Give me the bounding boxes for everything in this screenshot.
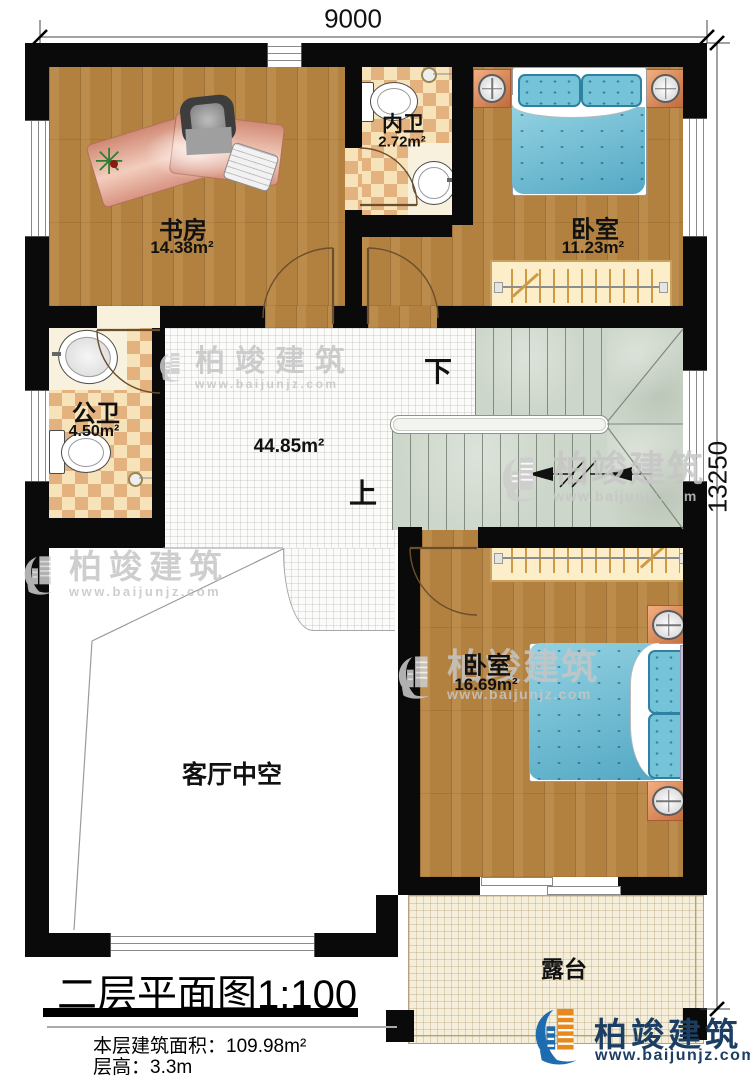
floor-hall-corner	[283, 548, 395, 631]
logo-url: www.baijunjz.com	[595, 1047, 750, 1065]
rod-cap	[659, 282, 668, 293]
door-threshold-study	[265, 306, 333, 328]
rod-cap	[494, 553, 503, 564]
wall-step-piece	[376, 895, 398, 935]
wall-bedroom2-bottom-left	[398, 877, 480, 895]
floor-height-line: 层高：3.3m	[93, 1052, 192, 1079]
lamp-cross	[656, 624, 681, 626]
window-left-bath	[25, 390, 49, 482]
sliding-door-panel	[547, 886, 621, 895]
pillow	[581, 74, 642, 107]
window-top	[267, 43, 302, 67]
table-lamp-icon	[478, 74, 506, 103]
wall-stair-bottom	[478, 527, 690, 548]
stair-down-label: 下	[424, 350, 452, 390]
hanger-rod	[496, 557, 686, 559]
stair-handrail	[390, 415, 609, 434]
nightstand	[473, 69, 511, 108]
wall-bedroom2-left	[398, 527, 420, 895]
watermark-url: www.baijunjz.com	[69, 585, 229, 599]
window-left-study	[25, 120, 49, 237]
room-area-study: 14.38m²	[150, 238, 213, 258]
table-lamp-icon	[651, 74, 680, 103]
room-area-publicbath: 4.50m²	[69, 423, 120, 441]
window-right-bedroom1	[683, 118, 707, 237]
watermark-name: 柏竣建筑	[69, 549, 229, 585]
plant-icon: ✳	[94, 144, 124, 180]
stair-upper-flight	[475, 328, 607, 424]
floor-area-value: 109.98m²	[226, 1036, 306, 1057]
title-underline	[43, 1008, 358, 1017]
duvet	[512, 107, 645, 194]
dimension-width-label: 9000	[324, 4, 382, 35]
room-label-void: 客厅中空	[182, 755, 282, 791]
sink-inner	[61, 333, 114, 382]
lamp-cross	[482, 88, 502, 90]
floor-plan-canvas: ✳	[0, 0, 750, 1079]
watermark-text: 柏竣建筑 www.baijunjz.com	[69, 549, 229, 599]
room-area-bedroom2: 16.69m²	[454, 675, 517, 695]
wall-innerbath-bottom	[362, 215, 452, 237]
lamp-cross	[656, 800, 681, 802]
dimension-height-label: 13250	[703, 441, 734, 513]
wall-publicbath-right	[152, 328, 165, 545]
plant-pot	[110, 160, 118, 168]
table-lamp-icon	[652, 786, 685, 816]
lamp-cross	[655, 88, 676, 90]
wall-hall-top-4	[437, 306, 690, 328]
floor-drain	[128, 472, 143, 487]
stair-lower-flight	[392, 424, 607, 530]
title-rule	[47, 1026, 397, 1028]
watermark: 柏竣建筑 www.baijunjz.com	[22, 549, 229, 601]
table-lamp-icon	[652, 610, 685, 640]
wall-hall-top-1	[49, 306, 97, 328]
pillow	[518, 74, 581, 107]
desk-pad	[185, 127, 232, 155]
hall-area: 44.85m²	[254, 436, 325, 458]
room-area-innerbath: 2.72m²	[378, 134, 426, 151]
floor-height-value: 3.3m	[150, 1057, 192, 1078]
toilet-bowl-inner	[68, 438, 104, 467]
wall-top	[25, 43, 707, 67]
logo-building-icon	[532, 1005, 590, 1067]
room-label-terrace: 露台	[541, 950, 587, 984]
shower-head	[421, 67, 437, 83]
stair-up-label: 上	[349, 472, 377, 512]
rod-cap	[494, 282, 503, 293]
sink	[412, 161, 456, 205]
wall-hall-top-2	[160, 306, 265, 328]
door-threshold-bedroom1	[368, 306, 437, 328]
stair-upper-winder	[607, 328, 683, 424]
faucet	[52, 352, 61, 356]
sink-inner	[418, 167, 450, 199]
wall-publicbath-bottom	[49, 518, 165, 548]
room-area-bedroom1: 11.23m²	[562, 238, 624, 258]
sliding-door-panel	[481, 877, 553, 886]
door-threshold-bath	[97, 306, 160, 328]
door-threshold-bedroom2	[422, 527, 478, 548]
stair-lower-winder	[607, 424, 683, 530]
nightstand	[646, 69, 685, 108]
wall-bedroom1-left	[452, 67, 473, 225]
wardrobe	[490, 260, 672, 312]
wall-hall-top-3	[333, 306, 368, 328]
void-edge-lines	[74, 548, 283, 930]
window-bottom-living	[110, 933, 315, 957]
wall-study-bath-upper	[345, 67, 362, 148]
floor-height-label: 层高：	[93, 1057, 150, 1078]
floor-innerbath-door	[345, 148, 362, 210]
wall-bedroom2-bottom-right	[618, 877, 707, 895]
